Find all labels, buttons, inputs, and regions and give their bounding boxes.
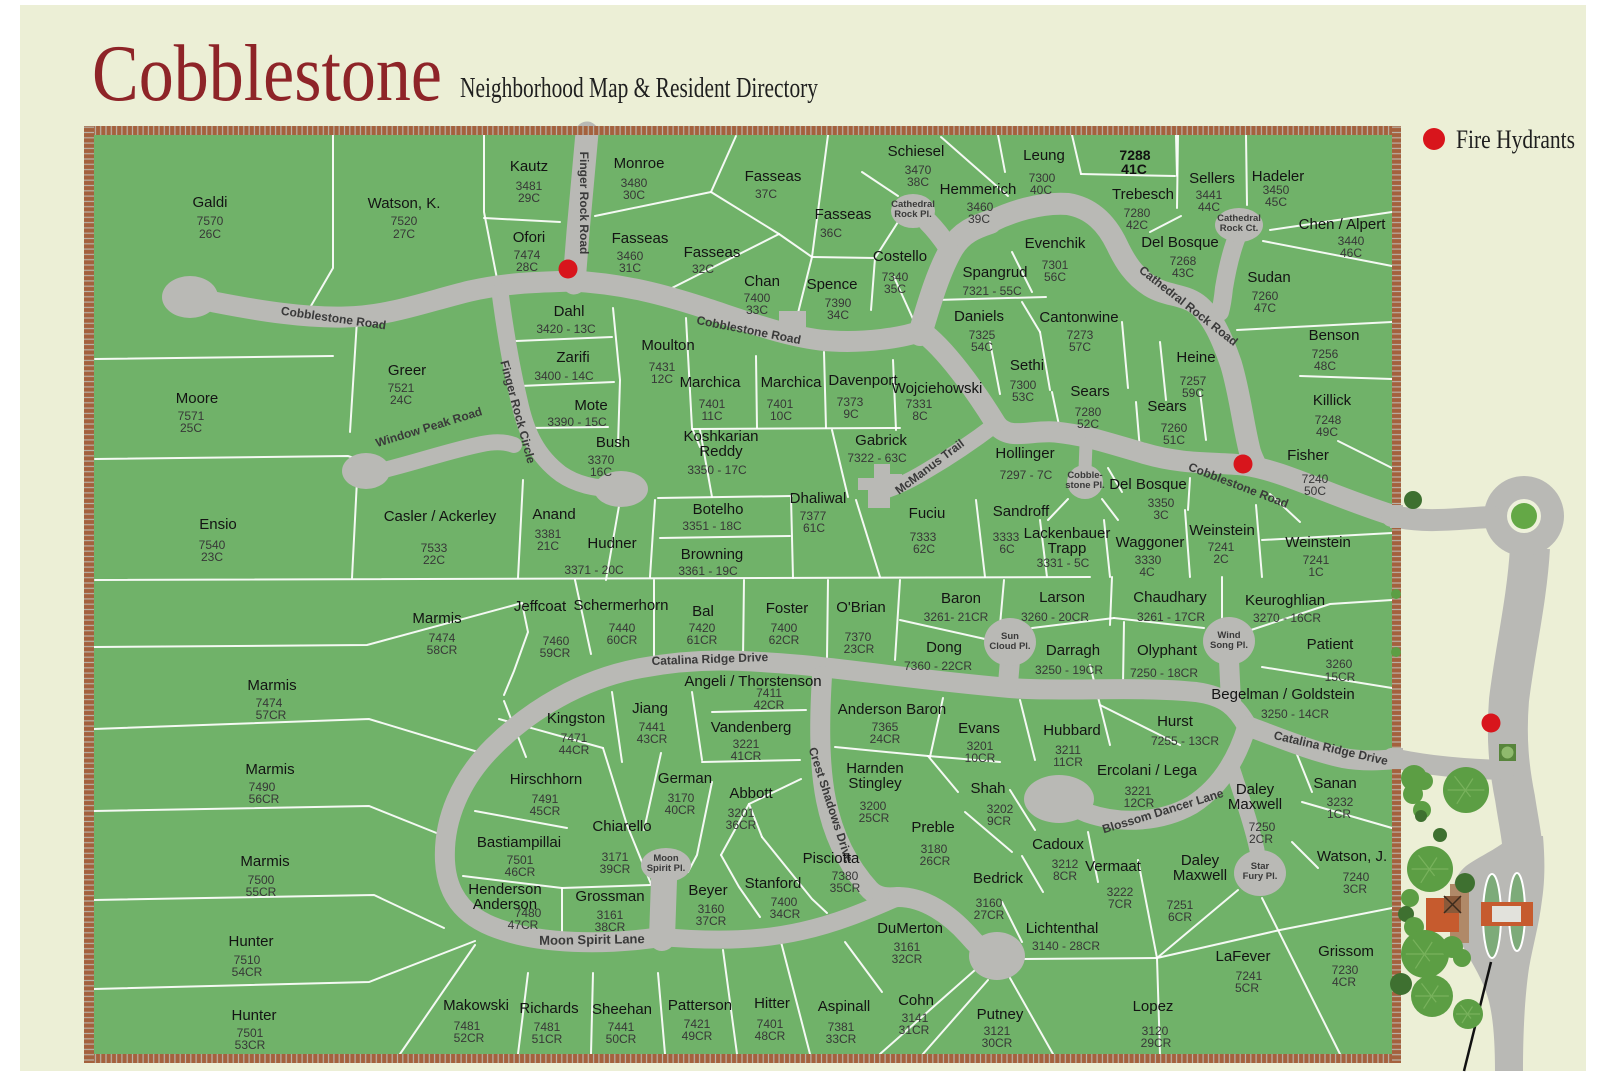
- svg-text:3250 - 19CR: 3250 - 19CR: [1035, 663, 1103, 677]
- svg-text:stone Pl.: stone Pl.: [1065, 480, 1105, 491]
- svg-text:54C: 54C: [971, 340, 993, 354]
- svg-text:32C: 32C: [692, 262, 714, 276]
- svg-text:Moulton: Moulton: [641, 337, 694, 354]
- svg-text:Grossman: Grossman: [575, 888, 644, 905]
- svg-text:Marmis: Marmis: [240, 853, 289, 870]
- svg-text:8CR: 8CR: [1053, 869, 1077, 883]
- svg-text:Kingston: Kingston: [547, 710, 605, 727]
- svg-text:Sears: Sears: [1070, 383, 1109, 400]
- svg-text:46C: 46C: [1340, 246, 1362, 260]
- svg-text:39CR: 39CR: [600, 862, 631, 876]
- svg-text:36CR: 36CR: [726, 818, 757, 832]
- svg-text:16C: 16C: [590, 465, 612, 479]
- svg-text:Maxwell: Maxwell: [1228, 796, 1282, 813]
- svg-text:40CR: 40CR: [665, 803, 696, 817]
- svg-text:49C: 49C: [1316, 425, 1338, 439]
- svg-text:11C: 11C: [701, 409, 722, 423]
- svg-text:51C: 51C: [1163, 433, 1185, 447]
- svg-text:22C: 22C: [423, 553, 445, 567]
- svg-text:Casler / Ackerley: Casler / Ackerley: [384, 508, 497, 525]
- svg-text:12C: 12C: [651, 372, 673, 386]
- svg-text:Sandroff: Sandroff: [993, 503, 1050, 520]
- svg-text:43C: 43C: [1172, 266, 1194, 280]
- svg-text:Hirschhorn: Hirschhorn: [510, 771, 583, 788]
- svg-text:Marchica: Marchica: [761, 374, 823, 391]
- svg-text:Stanford: Stanford: [745, 875, 802, 892]
- svg-text:3261 - 17CR: 3261 - 17CR: [1137, 610, 1205, 624]
- svg-text:Chiarello: Chiarello: [592, 818, 651, 835]
- svg-text:3C: 3C: [1153, 508, 1169, 522]
- svg-text:Makowski: Makowski: [443, 997, 509, 1014]
- svg-text:7360 - 22CR: 7360 - 22CR: [904, 659, 972, 673]
- svg-text:9C: 9C: [843, 407, 859, 421]
- svg-text:Maxwell: Maxwell: [1173, 867, 1227, 884]
- svg-text:45C: 45C: [1265, 195, 1287, 209]
- svg-text:Bal: Bal: [692, 603, 714, 620]
- svg-text:Chen / Alpert: Chen / Alpert: [1299, 216, 1387, 233]
- svg-text:33C: 33C: [746, 303, 768, 317]
- svg-text:Preble: Preble: [911, 819, 954, 836]
- svg-text:57CR: 57CR: [256, 708, 287, 722]
- svg-text:Grissom: Grissom: [1318, 943, 1374, 960]
- svg-text:10CR: 10CR: [965, 751, 996, 765]
- svg-text:German: German: [658, 770, 712, 787]
- svg-text:4C: 4C: [1139, 565, 1155, 579]
- svg-text:35C: 35C: [884, 282, 906, 296]
- svg-text:57C: 57C: [1069, 340, 1091, 354]
- svg-text:Cantonwine: Cantonwine: [1039, 309, 1118, 326]
- svg-text:3CR: 3CR: [1343, 882, 1367, 896]
- svg-text:Spangrud: Spangrud: [962, 264, 1027, 281]
- svg-text:3270 - 16CR: 3270 - 16CR: [1253, 611, 1321, 625]
- svg-text:36C: 36C: [820, 226, 842, 240]
- svg-text:Dhaliwal: Dhaliwal: [790, 490, 847, 507]
- svg-text:2CR: 2CR: [1249, 832, 1273, 846]
- svg-text:Spirit Pl.: Spirit Pl.: [647, 863, 686, 874]
- svg-text:Rock Ct.: Rock Ct.: [1220, 223, 1259, 234]
- svg-text:Foster: Foster: [766, 600, 809, 617]
- svg-text:Putney: Putney: [977, 1006, 1024, 1023]
- svg-text:53CR: 53CR: [235, 1038, 266, 1052]
- svg-text:Benson: Benson: [1309, 327, 1360, 344]
- svg-text:Reddy: Reddy: [699, 443, 743, 460]
- svg-text:7255 - 13CR: 7255 - 13CR: [1151, 734, 1219, 748]
- svg-text:Jiang: Jiang: [632, 700, 668, 717]
- svg-text:7CR: 7CR: [1108, 897, 1132, 911]
- svg-text:Sanan: Sanan: [1313, 775, 1356, 792]
- svg-text:Heine: Heine: [1176, 349, 1215, 366]
- svg-text:Browning: Browning: [681, 546, 744, 563]
- svg-text:Del Bosque: Del Bosque: [1141, 234, 1219, 251]
- svg-text:3390 - 15C: 3390 - 15C: [547, 415, 607, 429]
- svg-text:Darragh: Darragh: [1046, 642, 1100, 659]
- svg-text:3261- 21CR: 3261- 21CR: [924, 610, 989, 624]
- svg-text:Fury Pl.: Fury Pl.: [1243, 871, 1278, 882]
- svg-text:Evenchik: Evenchik: [1025, 235, 1086, 252]
- svg-text:Chaudhary: Chaudhary: [1133, 589, 1207, 606]
- svg-text:7520: 7520: [391, 214, 418, 228]
- svg-text:Davenport: Davenport: [828, 372, 898, 389]
- svg-text:8C: 8C: [912, 409, 928, 423]
- svg-text:52CR: 52CR: [454, 1031, 485, 1045]
- svg-text:Zarifi: Zarifi: [556, 349, 589, 366]
- svg-text:Marmis: Marmis: [247, 677, 296, 694]
- svg-text:3351 - 18C: 3351 - 18C: [682, 519, 742, 533]
- svg-text:Cadoux: Cadoux: [1032, 836, 1084, 853]
- svg-text:42CR: 42CR: [754, 698, 785, 712]
- svg-text:Chan: Chan: [744, 273, 780, 290]
- svg-text:5CR: 5CR: [1235, 981, 1259, 995]
- svg-text:24C: 24C: [390, 393, 412, 407]
- svg-text:Anderson Baron: Anderson Baron: [838, 701, 946, 718]
- svg-text:Shah: Shah: [970, 780, 1005, 797]
- svg-text:Wojciehowski: Wojciehowski: [892, 380, 983, 397]
- svg-text:Fasseas: Fasseas: [612, 230, 669, 247]
- svg-text:Ofori: Ofori: [513, 229, 546, 246]
- svg-text:Sellers: Sellers: [1189, 170, 1235, 187]
- svg-text:Waggoner: Waggoner: [1116, 534, 1185, 551]
- svg-text:61C: 61C: [803, 521, 825, 535]
- svg-text:30C: 30C: [623, 188, 645, 202]
- svg-text:Bush: Bush: [596, 434, 630, 451]
- svg-text:Fasseas: Fasseas: [745, 168, 802, 185]
- svg-text:Del Bosque: Del Bosque: [1109, 476, 1187, 493]
- svg-text:Costello: Costello: [873, 248, 927, 265]
- svg-text:Daniels: Daniels: [954, 308, 1004, 325]
- svg-text:3250 - 14CR: 3250 - 14CR: [1261, 707, 1329, 721]
- svg-text:Hunter: Hunter: [231, 1007, 276, 1024]
- svg-text:28C: 28C: [516, 260, 538, 274]
- svg-text:37CR: 37CR: [696, 914, 727, 928]
- svg-text:47CR: 47CR: [508, 918, 539, 932]
- svg-text:Evans: Evans: [958, 720, 1000, 737]
- svg-text:10C: 10C: [770, 409, 792, 423]
- svg-text:46CR: 46CR: [505, 865, 536, 879]
- svg-text:3260: 3260: [1326, 657, 1353, 671]
- svg-text:Finger Rock Road: Finger Rock Road: [577, 152, 591, 255]
- svg-text:15CR: 15CR: [1325, 670, 1356, 684]
- svg-text:Larson: Larson: [1039, 589, 1085, 606]
- svg-text:Kautz: Kautz: [510, 158, 548, 175]
- svg-text:DuMerton: DuMerton: [877, 920, 943, 937]
- svg-text:Hubbard: Hubbard: [1043, 722, 1101, 739]
- svg-text:Keuroghlian: Keuroghlian: [1245, 592, 1325, 609]
- svg-text:Killick: Killick: [1313, 392, 1352, 409]
- svg-text:59CR: 59CR: [540, 646, 571, 660]
- svg-text:Sudan: Sudan: [1247, 269, 1290, 286]
- svg-text:3260 - 20CR: 3260 - 20CR: [1021, 610, 1089, 624]
- svg-text:Dong: Dong: [926, 639, 962, 656]
- svg-text:Watson, J.: Watson, J.: [1317, 848, 1387, 865]
- svg-text:23CR: 23CR: [844, 642, 875, 656]
- svg-text:49CR: 49CR: [682, 1029, 713, 1043]
- svg-text:Angeli / Thorstenson: Angeli / Thorstenson: [684, 673, 821, 690]
- svg-text:Hollinger: Hollinger: [995, 445, 1054, 462]
- svg-text:7322 - 63C: 7322 - 63C: [847, 451, 907, 465]
- svg-text:Baron: Baron: [941, 590, 981, 607]
- svg-text:Botelho: Botelho: [693, 501, 744, 518]
- svg-text:Bastiampillai: Bastiampillai: [477, 834, 561, 851]
- svg-text:Fuciu: Fuciu: [909, 505, 946, 522]
- svg-text:Trapp: Trapp: [1048, 540, 1087, 557]
- svg-text:24CR: 24CR: [870, 732, 901, 746]
- svg-text:4CR: 4CR: [1332, 975, 1356, 989]
- svg-text:Begelman / Goldstein: Begelman / Goldstein: [1211, 686, 1354, 703]
- svg-text:Moore: Moore: [176, 390, 219, 407]
- svg-text:62CR: 62CR: [769, 633, 800, 647]
- svg-text:Pisciotta: Pisciotta: [803, 850, 860, 867]
- svg-text:Jeffcoat: Jeffcoat: [514, 598, 567, 615]
- svg-text:34CR: 34CR: [770, 907, 801, 921]
- svg-text:Richards: Richards: [519, 1000, 578, 1017]
- svg-text:51CR: 51CR: [532, 1032, 563, 1046]
- svg-text:Greer: Greer: [388, 362, 426, 379]
- svg-text:11CR: 11CR: [1053, 755, 1083, 769]
- svg-text:Olyphant: Olyphant: [1137, 642, 1198, 659]
- svg-text:26C: 26C: [199, 227, 221, 241]
- svg-text:Cohn: Cohn: [898, 992, 934, 1009]
- svg-text:3420 - 13C: 3420 - 13C: [536, 322, 596, 336]
- svg-text:7297 - 7C: 7297 - 7C: [1000, 468, 1053, 482]
- svg-text:50C: 50C: [1304, 484, 1326, 498]
- svg-text:Schermerhorn: Schermerhorn: [573, 597, 668, 614]
- svg-text:3371 - 20C: 3371 - 20C: [564, 563, 624, 577]
- svg-text:Fasseas: Fasseas: [815, 206, 872, 223]
- svg-text:3361 - 19C: 3361 - 19C: [678, 564, 738, 578]
- svg-text:7250 - 18CR: 7250 - 18CR: [1130, 666, 1198, 680]
- svg-text:38C: 38C: [907, 175, 929, 189]
- svg-text:47C: 47C: [1254, 301, 1276, 315]
- svg-text:29CR: 29CR: [1141, 1036, 1172, 1050]
- svg-text:9CR: 9CR: [987, 814, 1011, 828]
- svg-text:Galdi: Galdi: [192, 194, 227, 211]
- svg-text:LaFever: LaFever: [1215, 948, 1270, 965]
- svg-text:30CR: 30CR: [982, 1036, 1013, 1050]
- svg-text:Weinstein: Weinstein: [1189, 522, 1255, 539]
- svg-text:1CR: 1CR: [1327, 807, 1351, 821]
- svg-text:Dahl: Dahl: [554, 303, 585, 320]
- svg-text:Lichtenthal: Lichtenthal: [1026, 920, 1099, 937]
- svg-text:25CR: 25CR: [859, 811, 890, 825]
- svg-text:2C: 2C: [1213, 552, 1229, 566]
- svg-text:Mote: Mote: [574, 397, 607, 414]
- svg-text:Lopez: Lopez: [1133, 998, 1174, 1015]
- svg-text:Fire Hydrants: Fire Hydrants: [1456, 125, 1575, 154]
- svg-text:62C: 62C: [913, 542, 935, 556]
- svg-text:Ercolani / Lega: Ercolani / Lega: [1097, 762, 1198, 779]
- svg-text:7570: 7570: [197, 214, 224, 228]
- svg-text:26CR: 26CR: [920, 854, 951, 868]
- svg-text:43CR: 43CR: [637, 732, 668, 746]
- svg-text:Stingley: Stingley: [848, 775, 902, 792]
- svg-text:29C: 29C: [518, 191, 540, 205]
- svg-text:Hudner: Hudner: [587, 535, 636, 552]
- svg-text:Cloud Pl.: Cloud Pl.: [989, 641, 1030, 652]
- svg-text:48CR: 48CR: [755, 1029, 786, 1043]
- svg-text:44CR: 44CR: [559, 743, 590, 757]
- svg-text:12CR: 12CR: [1124, 796, 1155, 810]
- svg-text:Sears: Sears: [1147, 398, 1186, 415]
- svg-text:Sheehan: Sheehan: [592, 1001, 652, 1018]
- svg-text:42C: 42C: [1126, 218, 1148, 232]
- svg-text:3331 - 5C: 3331 - 5C: [1037, 556, 1090, 570]
- svg-text:31C: 31C: [619, 261, 641, 275]
- svg-text:Gabrick: Gabrick: [855, 432, 907, 449]
- svg-text:53C: 53C: [1012, 390, 1034, 404]
- svg-text:6CR: 6CR: [1168, 910, 1192, 924]
- svg-text:21C: 21C: [537, 539, 559, 553]
- svg-text:Marmis: Marmis: [245, 761, 294, 778]
- svg-text:Patterson: Patterson: [668, 997, 732, 1014]
- svg-text:Song Pl.: Song Pl.: [1210, 640, 1248, 651]
- svg-text:Cobblestone: Cobblestone: [92, 30, 442, 118]
- svg-text:39C: 39C: [968, 212, 990, 226]
- svg-text:41C: 41C: [1121, 161, 1147, 177]
- svg-text:33CR: 33CR: [826, 1032, 857, 1046]
- svg-text:Moon Spirit Lane: Moon Spirit Lane: [539, 931, 645, 948]
- svg-text:55CR: 55CR: [246, 885, 277, 899]
- svg-text:6C: 6C: [999, 542, 1015, 556]
- svg-text:Vermaat: Vermaat: [1085, 858, 1142, 875]
- svg-text:Patient: Patient: [1307, 636, 1355, 653]
- svg-text:31CR: 31CR: [899, 1023, 930, 1037]
- svg-text:Hitter: Hitter: [754, 995, 790, 1012]
- svg-text:Sethi: Sethi: [1010, 357, 1044, 374]
- svg-text:44C: 44C: [1198, 200, 1220, 214]
- svg-text:56CR: 56CR: [249, 792, 280, 806]
- svg-text:3140 - 28CR: 3140 - 28CR: [1032, 939, 1100, 953]
- svg-text:60CR: 60CR: [607, 633, 638, 647]
- svg-text:35CR: 35CR: [830, 881, 861, 895]
- svg-text:48C: 48C: [1314, 359, 1336, 373]
- svg-text:Schiesel: Schiesel: [888, 143, 945, 160]
- svg-text:41CR: 41CR: [731, 749, 762, 763]
- svg-text:Marmis: Marmis: [412, 610, 461, 627]
- svg-text:1C: 1C: [1308, 565, 1324, 579]
- svg-text:Hurst: Hurst: [1157, 713, 1194, 730]
- svg-text:Bedrick: Bedrick: [973, 870, 1024, 887]
- svg-text:Aspinall: Aspinall: [818, 998, 871, 1015]
- svg-text:Ensio: Ensio: [199, 516, 237, 533]
- svg-text:40C: 40C: [1030, 183, 1052, 197]
- svg-text:Neighborhood Map & Resident Di: Neighborhood Map & Resident Directory: [460, 72, 818, 104]
- svg-text:Abbott: Abbott: [729, 785, 773, 802]
- svg-text:50CR: 50CR: [606, 1032, 637, 1046]
- svg-text:Trebesch: Trebesch: [1112, 186, 1174, 203]
- svg-text:3400 - 14C: 3400 - 14C: [534, 369, 594, 383]
- svg-text:58CR: 58CR: [427, 643, 458, 657]
- svg-text:Vandenberg: Vandenberg: [711, 719, 792, 736]
- svg-text:38CR: 38CR: [595, 920, 626, 934]
- svg-text:37C: 37C: [755, 187, 777, 201]
- svg-text:Beyer: Beyer: [688, 882, 727, 899]
- svg-text:Spence: Spence: [807, 276, 858, 293]
- svg-text:Watson, K.: Watson, K.: [368, 195, 441, 212]
- svg-text:7321 - 55C: 7321 - 55C: [962, 284, 1022, 298]
- svg-text:Leung: Leung: [1023, 147, 1065, 164]
- svg-text:27CR: 27CR: [974, 908, 1005, 922]
- svg-text:52C: 52C: [1077, 417, 1099, 431]
- svg-text:O'Brian: O'Brian: [836, 599, 886, 616]
- svg-text:Hemmerich: Hemmerich: [940, 181, 1017, 198]
- svg-text:Anand: Anand: [532, 506, 575, 523]
- svg-text:Monroe: Monroe: [614, 155, 665, 172]
- svg-text:61CR: 61CR: [687, 633, 718, 647]
- svg-text:32CR: 32CR: [892, 952, 923, 966]
- svg-text:34C: 34C: [827, 308, 849, 322]
- svg-text:45CR: 45CR: [530, 804, 561, 818]
- svg-text:3350 - 17C: 3350 - 17C: [687, 463, 747, 477]
- svg-text:27C: 27C: [393, 227, 415, 241]
- svg-text:23C: 23C: [201, 550, 223, 564]
- svg-text:Fasseas: Fasseas: [684, 244, 741, 261]
- svg-text:25C: 25C: [180, 421, 202, 435]
- svg-text:Weinstein: Weinstein: [1285, 534, 1351, 551]
- svg-text:Marchica: Marchica: [680, 374, 742, 391]
- svg-text:Hunter: Hunter: [228, 933, 273, 950]
- svg-text:Fisher: Fisher: [1287, 447, 1329, 464]
- svg-text:56C: 56C: [1044, 270, 1066, 284]
- svg-text:54CR: 54CR: [232, 965, 263, 979]
- svg-text:Rock Pl.: Rock Pl.: [894, 209, 932, 220]
